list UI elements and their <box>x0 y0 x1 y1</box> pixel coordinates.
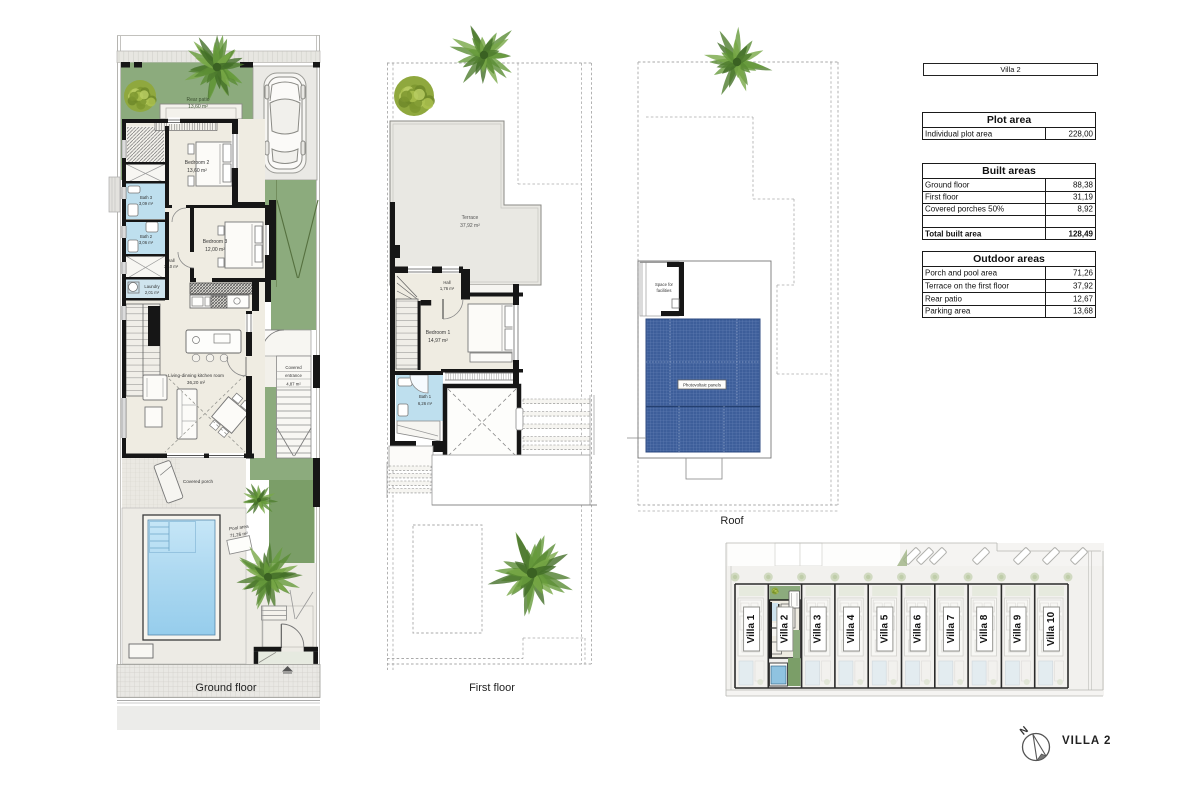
svg-text:Villa 10: Villa 10 <box>1046 611 1057 646</box>
svg-text:Bedroom 1: Bedroom 1 <box>426 330 451 336</box>
svg-text:Bath 2: Bath 2 <box>140 234 153 239</box>
svg-text:VILLA 2: VILLA 2 <box>1062 735 1111 747</box>
svg-text:Terrace: Terrace <box>462 215 479 221</box>
svg-text:Villa 2: Villa 2 <box>779 614 790 643</box>
svg-text:Photovoltaic panels: Photovoltaic panels <box>683 383 722 388</box>
svg-text:Villa 4: Villa 4 <box>846 614 857 643</box>
svg-text:2,01 m²: 2,01 m² <box>145 290 160 295</box>
svg-text:entrance: entrance <box>285 373 302 378</box>
svg-text:Hall: Hall <box>443 280 450 285</box>
svg-text:Villa 6: Villa 6 <box>913 614 924 643</box>
svg-text:1,76 m²: 1,76 m² <box>440 286 455 291</box>
svg-text:First floor: First floor <box>469 682 515 694</box>
svg-text:12,00 m²: 12,00 m² <box>205 247 225 253</box>
svg-text:Villa 3: Villa 3 <box>813 614 824 643</box>
svg-text:3,06 m²: 3,06 m² <box>139 240 154 245</box>
svg-text:Covered porch: Covered porch <box>183 479 214 484</box>
svg-text:Space for: Space for <box>655 282 674 287</box>
svg-text:Villa 7: Villa 7 <box>946 614 957 643</box>
svg-text:6,26 m²: 6,26 m² <box>418 401 433 406</box>
svg-text:facilities: facilities <box>657 288 672 293</box>
svg-text:Rear patio: Rear patio <box>186 97 209 103</box>
svg-text:Bedroom 2: Bedroom 2 <box>185 160 210 166</box>
svg-text:Villa 5: Villa 5 <box>879 614 890 643</box>
svg-text:13,60 m²: 13,60 m² <box>187 168 207 174</box>
svg-text:Bedroom 3: Bedroom 3 <box>203 239 228 245</box>
svg-text:Villa 1: Villa 1 <box>746 614 757 643</box>
svg-text:Laundry: Laundry <box>144 284 160 289</box>
svg-text:Bath 1: Bath 1 <box>419 394 432 399</box>
svg-text:Villa 9: Villa 9 <box>1013 614 1024 643</box>
svg-text:Villa 8: Villa 8 <box>979 614 990 643</box>
svg-text:Roof: Roof <box>720 515 744 527</box>
svg-text:Ground floor: Ground floor <box>195 682 256 694</box>
svg-text:36,20 m²: 36,20 m² <box>187 380 206 385</box>
svg-text:Bath 3: Bath 3 <box>140 195 153 200</box>
svg-text:13,60 m²: 13,60 m² <box>188 104 208 110</box>
svg-text:Covered: Covered <box>285 365 302 370</box>
svg-text:Living-dinning kitchen room: Living-dinning kitchen room <box>168 373 224 378</box>
svg-text:3,09 m²: 3,09 m² <box>139 201 154 206</box>
svg-text:14,97 m²: 14,97 m² <box>428 338 448 344</box>
svg-text:4,87 m²: 4,87 m² <box>286 382 301 387</box>
svg-text:37,92 m²: 37,92 m² <box>460 223 480 229</box>
